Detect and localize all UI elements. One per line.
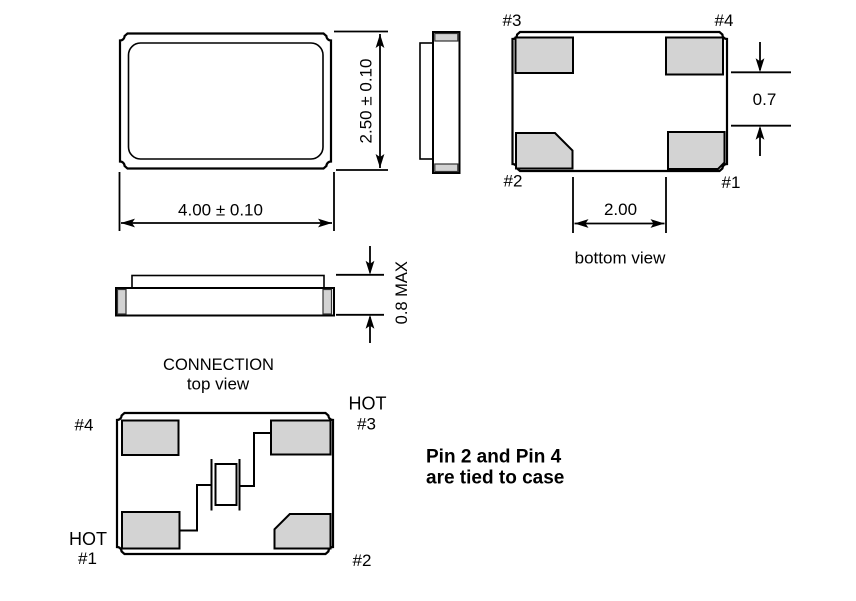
svg-text:#1: #1 <box>78 549 97 568</box>
svg-text:are tied to case: are tied to case <box>426 468 564 489</box>
svg-text:top view: top view <box>187 375 250 394</box>
svg-text:bottom view: bottom view <box>575 249 666 268</box>
svg-text:HOT: HOT <box>69 529 107 549</box>
svg-text:2.50 ± 0.10: 2.50 ± 0.10 <box>357 59 376 144</box>
svg-text:#2: #2 <box>353 551 372 570</box>
svg-text:#3: #3 <box>357 415 376 434</box>
svg-text:Pin 2 and Pin 4: Pin 2 and Pin 4 <box>426 447 562 468</box>
svg-text:#2: #2 <box>504 172 523 191</box>
svg-text:4.00 ± 0.10: 4.00 ± 0.10 <box>178 201 263 220</box>
svg-text:#3: #3 <box>503 11 522 30</box>
svg-text:#4: #4 <box>75 416 94 435</box>
svg-text:0.7: 0.7 <box>753 90 777 109</box>
svg-text:#1: #1 <box>722 173 741 192</box>
svg-text:#4: #4 <box>715 11 734 30</box>
svg-text:CONNECTION: CONNECTION <box>163 356 274 374</box>
svg-text:HOT: HOT <box>349 394 387 414</box>
svg-text:0.8 MAX: 0.8 MAX <box>393 261 411 324</box>
svg-text:2.00: 2.00 <box>604 200 637 219</box>
